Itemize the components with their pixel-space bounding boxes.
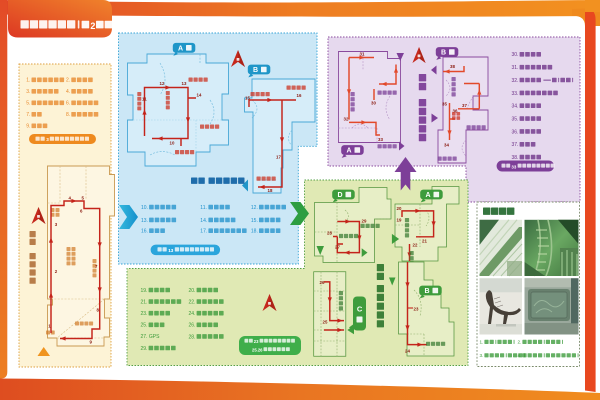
svg-text:29: 29: [362, 219, 367, 224]
svg-text:9.: 9.: [26, 124, 30, 130]
svg-text:29.: 29.: [141, 346, 148, 352]
svg-text:25.: 25.: [141, 323, 148, 329]
svg-text:15: 15: [245, 96, 250, 101]
svg-text:A: A: [347, 148, 352, 155]
svg-text:8.: 8.: [66, 112, 70, 118]
svg-text:27. GPS: 27. GPS: [141, 334, 161, 340]
svg-text:15.: 15.: [251, 218, 258, 224]
svg-text:1.: 1.: [26, 78, 30, 84]
svg-text:13: 13: [182, 81, 187, 86]
svg-text:21.: 21.: [141, 300, 148, 306]
svg-text:4.: 4.: [518, 353, 522, 358]
svg-text:6.: 6.: [66, 101, 70, 107]
svg-text:22.: 22.: [189, 300, 196, 306]
svg-text:31: 31: [360, 52, 365, 57]
svg-text:25: 25: [323, 320, 328, 325]
svg-text:28.: 28.: [189, 334, 196, 340]
svg-text:7.: 7.: [26, 112, 30, 118]
svg-text:26: 26: [320, 280, 325, 285]
svg-text:D: D: [338, 192, 343, 199]
svg-text:13.: 13.: [141, 218, 148, 224]
svg-text:12: 12: [160, 81, 165, 86]
svg-text:B: B: [441, 50, 446, 57]
svg-text:B: B: [253, 67, 258, 74]
svg-text:35.: 35.: [512, 117, 519, 123]
svg-text:2.: 2.: [66, 78, 70, 84]
svg-text:33.: 33.: [512, 91, 519, 97]
svg-text:2: 2: [90, 21, 95, 31]
svg-text:10.: 10.: [141, 205, 148, 211]
svg-text:37.: 37.: [512, 142, 519, 148]
svg-text:14.: 14.: [200, 218, 207, 224]
svg-text:18: 18: [268, 188, 273, 193]
svg-text:23: 23: [254, 339, 259, 344]
svg-text:32: 32: [344, 117, 349, 122]
svg-text:A: A: [426, 192, 431, 199]
svg-text:33: 33: [378, 137, 383, 142]
svg-text:10: 10: [170, 141, 175, 146]
svg-text:11.: 11.: [200, 205, 207, 211]
svg-text:23.: 23.: [141, 311, 148, 317]
svg-text:27: 27: [335, 245, 340, 250]
svg-text:35: 35: [442, 102, 447, 107]
svg-text:34: 34: [444, 143, 449, 148]
svg-text:26.: 26.: [189, 323, 196, 329]
svg-text:30.: 30.: [512, 52, 519, 58]
svg-text:13: 13: [168, 248, 174, 253]
svg-text:33: 33: [511, 164, 516, 169]
svg-text:14: 14: [197, 93, 202, 98]
svg-text:19: 19: [397, 218, 402, 223]
svg-text:38.: 38.: [512, 155, 519, 161]
svg-text:18.: 18.: [251, 229, 258, 235]
svg-text:3: 3: [46, 137, 49, 142]
svg-text:4.: 4.: [66, 89, 70, 95]
svg-text:19.: 19.: [141, 288, 148, 294]
svg-text:16: 16: [297, 93, 302, 98]
svg-text:17: 17: [276, 155, 281, 160]
svg-text:11: 11: [142, 97, 147, 102]
svg-text:24.: 24.: [189, 311, 196, 317]
svg-text:31.: 31.: [512, 65, 519, 71]
svg-text:32.: 32.: [512, 78, 519, 84]
svg-text:20.: 20.: [189, 288, 196, 294]
svg-text:36.: 36.: [512, 129, 519, 135]
svg-text:5.: 5.: [26, 101, 30, 107]
svg-text:16.: 16.: [141, 229, 148, 235]
svg-text:22: 22: [413, 243, 418, 248]
svg-text:20: 20: [397, 206, 402, 211]
svg-text:C: C: [357, 305, 363, 314]
svg-text:3.: 3.: [480, 353, 484, 358]
svg-text:A: A: [178, 45, 183, 52]
svg-text:B: B: [425, 288, 430, 295]
svg-text:28: 28: [327, 231, 332, 236]
svg-text:21: 21: [422, 239, 427, 244]
svg-text:24: 24: [405, 349, 410, 354]
svg-text:3.: 3.: [26, 89, 30, 95]
svg-text:12.: 12.: [251, 205, 258, 211]
svg-text:38: 38: [450, 64, 455, 69]
svg-text:25.26: 25.26: [252, 348, 263, 353]
svg-text:1.: 1.: [480, 340, 484, 345]
svg-text:34.: 34.: [512, 104, 519, 110]
svg-text:17.: 17.: [200, 229, 207, 235]
svg-text:37: 37: [462, 103, 467, 108]
svg-text:2.: 2.: [518, 340, 522, 345]
svg-text:30: 30: [371, 101, 376, 106]
svg-text:23: 23: [414, 307, 419, 312]
